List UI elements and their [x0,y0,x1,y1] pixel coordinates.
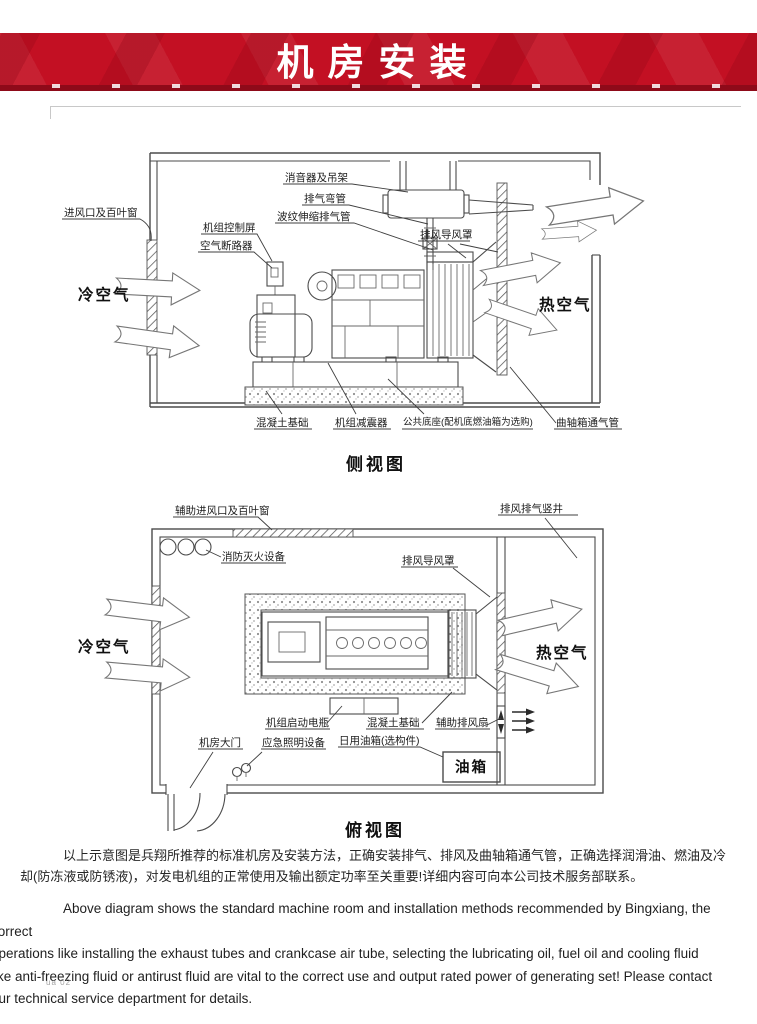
side-view-diagram: 消音器及吊架 排气弯管 波纹伸缩排气管 排风导风罩 机组控制屏 空气断路器 进风… [0,140,757,485]
label-air-guide-hood-top: 排风导风罩 [402,554,455,567]
generator-set-side [250,242,497,372]
top-view-diagram: 辅助进风口及百叶窗 排风排气竖井 消防灭火设备 排风导风罩 冷空气 热空气 机组… [0,495,757,845]
hot-air-arrow [479,248,563,293]
label-exhaust-shaft: 排风排气竖井 [500,502,563,515]
fan-flow-arrow [512,727,535,734]
chinese-note-paragraph: 以上示意图是兵翔所推荐的标准机房及安装方法，正确安装排气、排风及曲轴箱通气管，正… [20,845,742,887]
alternator [250,314,312,357]
header-banner: 机房安装 [0,33,757,91]
label-exhaust-elbow: 排气弯管 [304,192,346,205]
hot-air-arrow [496,594,585,644]
top-view-caption: 俯视图 [345,820,405,840]
aux-fan-icon [497,706,505,738]
label-start-battery: 机组启动电瓶 [266,716,329,729]
door-leaves [168,793,225,831]
machine-room-walls [147,153,600,407]
muffler [388,190,464,218]
exhaust-system [383,161,533,270]
label-hot-air-top: 热空气 [536,643,589,662]
divider-hatch [497,593,505,693]
en-note-line: operations like installing the exhaust t… [0,943,739,966]
en-note-line: like anti-freezing fluid or antirust flu… [0,966,739,989]
label-air-guide-hood: 排风导风罩 [420,228,473,241]
cold-air-arrow [105,654,191,693]
fan-flow-arrow [512,718,535,725]
label-emergency-light: 应急照明设备 [262,736,325,749]
concrete-pad [245,387,463,405]
label-cold-air-top: 冷空气 [78,637,131,656]
label-room-door: 机房大门 [199,736,241,749]
radiator-top-tank [427,252,473,262]
common-base-frame [253,362,458,387]
label-shock-absorber: 机组减震器 [335,416,388,429]
label-bellows-pipe: 波纹伸缩排气管 [277,210,351,223]
page-title: 机房安装 [0,35,757,89]
air-guide-duct-plan [476,597,497,690]
en-note-line: our technical service department for det… [0,988,739,1011]
cn-note-line: 却(防冻液或防锈液)，对发电机组的正常使用及输出额定功率至关重要!详细内容可向本… [20,866,742,887]
content-frame-top-line [50,106,741,107]
door-opening [166,783,227,795]
label-common-base: 公共底座(配机底燃油箱为选购) [403,416,533,428]
english-note-paragraph: Above diagram shows the standard machine… [0,898,739,1011]
aux-inlet-hatch [233,529,353,537]
engine-block [332,270,424,358]
label-air-inlet-louver: 进风口及百叶窗 [64,206,138,219]
cn-note-line: 以上示意图是兵翔所推荐的标准机房及安装方法，正确安装排气、排风及曲轴箱通气管，正… [20,845,742,866]
en-note-line: Above diagram shows the standard machine… [0,898,739,943]
label-fuel-tank-box: 油箱 [455,758,488,776]
label-aux-inlet-louver: 辅助进风口及百叶窗 [175,504,270,517]
emergency-light-icons [233,764,251,782]
content-frame-left-tick [50,106,51,119]
label-air-breaker: 空气断路器 [200,239,253,252]
cold-air-arrow [104,591,191,633]
radiator-core [427,262,473,358]
fire-extinguisher-icons [160,539,211,555]
label-concrete-base-top: 混凝土基础 [367,716,420,729]
label-control-panel: 机组控制屏 [203,221,256,234]
label-concrete-base: 混凝土基础 [256,416,309,429]
label-cold-air: 冷空气 [78,285,131,304]
label-crankcase-vent: 曲轴箱通气管 [556,416,619,429]
hot-air-arrow [545,183,646,234]
hot-air-arrow [541,220,597,245]
side-view-caption: 侧视图 [346,454,406,474]
label-daily-fuel-tank: 日用油箱(选构件) [339,734,420,747]
label-muffler: 消音器及吊架 [285,171,348,184]
document-page: 机房安装 [0,0,757,1024]
air-flow-arrows-side [114,183,647,362]
label-fire-equipment: 消防灭火设备 [222,550,285,563]
generator-set-plan [245,594,497,694]
label-aux-exhaust-fan: 辅助排风扇 [436,716,489,729]
cold-air-arrow [114,318,202,361]
base-foundation [245,357,463,405]
muffler-hangers [400,161,456,190]
fan-flow-arrow [512,709,535,716]
footer-scan-mark: ua 02 [46,978,71,987]
label-hot-air: 热空气 [539,295,592,314]
